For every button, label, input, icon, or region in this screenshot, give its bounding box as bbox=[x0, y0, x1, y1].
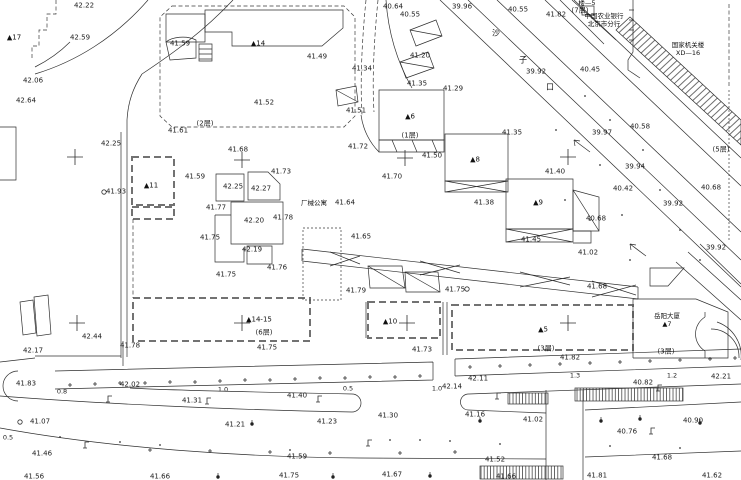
spot-elevation-label: 42.27 bbox=[251, 186, 271, 193]
spot-elevation-label: 42.44 bbox=[82, 334, 102, 341]
building-number-label: ▲14 bbox=[251, 41, 265, 48]
dimension-label: 1.3 bbox=[570, 373, 580, 380]
spot-elevation-label: 41.21 bbox=[225, 422, 245, 429]
spot-elevation-label: 41.83 bbox=[16, 381, 36, 388]
street-name-char: 沙 bbox=[492, 30, 500, 37]
spot-elevation-label: 40.55 bbox=[400, 12, 420, 19]
spot-elevation-label: 40.68 bbox=[701, 185, 721, 192]
spot-elevation-label: 41.66 bbox=[150, 474, 170, 480]
spot-elevation-label: 41.75 bbox=[200, 235, 220, 242]
spot-elevation-label: 42.06 bbox=[23, 78, 43, 85]
spot-elevation-label: 41.68 bbox=[587, 284, 607, 291]
annotation-apartment: 厂械公寓 bbox=[301, 200, 327, 208]
floor-count-label: (5层) bbox=[713, 147, 730, 154]
building-number-label: ▲9 bbox=[533, 200, 543, 207]
spot-elevation-label: 41.59 bbox=[287, 454, 307, 461]
spot-elevation-label: 41.35 bbox=[502, 130, 522, 137]
spot-elevation-label: 41.52 bbox=[485, 457, 505, 464]
spot-elevation-label: 41.29 bbox=[443, 86, 463, 93]
spot-elevation-label: 42.02 bbox=[120, 382, 140, 389]
spot-elevation-label: 41.02 bbox=[523, 417, 543, 424]
spot-elevation-label: 41.23 bbox=[317, 419, 337, 426]
spot-elevation-label: 41.67 bbox=[382, 472, 402, 479]
floor-count-label: (2层) bbox=[197, 121, 214, 128]
spot-elevation-label: 41.38 bbox=[474, 200, 494, 207]
floor-count-label: (3层) bbox=[538, 346, 555, 353]
spot-elevation-label: 42.14 bbox=[442, 384, 462, 391]
spot-elevation-label: 41.68 bbox=[652, 455, 672, 462]
spot-elevation-label: 41.46 bbox=[32, 451, 52, 458]
spot-elevation-label: 40.82 bbox=[633, 380, 653, 387]
spot-elevation-label: 41.78 bbox=[273, 215, 293, 222]
spot-elevation-label: 41.75 bbox=[445, 287, 465, 294]
spot-elevation-label: 41.75 bbox=[257, 345, 277, 352]
dimension-label: 0.8 bbox=[57, 389, 67, 396]
spot-elevation-label: 41.65 bbox=[351, 234, 371, 241]
spot-elevation-label: 41.70 bbox=[382, 174, 402, 181]
spot-elevation-label: 42.20 bbox=[244, 218, 264, 225]
spot-elevation-label: 40.90 bbox=[683, 418, 703, 425]
spot-elevation-label: 42.59 bbox=[70, 35, 90, 42]
spot-elevation-label: 41.82 bbox=[546, 12, 566, 19]
spot-elevation-label: 40.58 bbox=[630, 124, 650, 131]
building-number-label: ▲10 bbox=[383, 319, 397, 326]
spot-elevation-label: 41.68 bbox=[228, 147, 248, 154]
spot-elevation-label: 41.30 bbox=[378, 413, 398, 420]
spot-elevation-label: 42.21 bbox=[711, 374, 731, 381]
plus-tick-icons bbox=[68, 356, 737, 455]
spot-elevation-label: 41.93 bbox=[106, 189, 126, 196]
dimension-label: 1.0 bbox=[432, 386, 442, 393]
spot-elevation-label: 39.92 bbox=[663, 201, 683, 208]
spot-elevation-label: 40.64 bbox=[383, 4, 403, 11]
spot-elevation-label: 39.94 bbox=[625, 164, 645, 171]
spot-elevation-label: 41.02 bbox=[578, 250, 598, 257]
spot-elevation-label: 41.51 bbox=[346, 108, 366, 115]
spot-elevation-label: 40.76 bbox=[617, 429, 637, 436]
survey-grid-cross-icons bbox=[67, 149, 576, 331]
building-number-label: ▲6 bbox=[405, 114, 415, 121]
spot-elevation-label: 41.75 bbox=[216, 272, 236, 279]
spot-elevation-label: 40.68 bbox=[586, 216, 606, 223]
building-number-label: ▲14-15 bbox=[246, 317, 272, 324]
spot-elevation-label: 41.49 bbox=[307, 54, 327, 61]
spot-elevation-label: 41.59 bbox=[170, 41, 190, 48]
spot-elevation-label: 40.45 bbox=[580, 67, 600, 74]
annotation-line: 厂械公寓 bbox=[301, 200, 327, 208]
spot-elevation-label: 41.73 bbox=[271, 169, 291, 176]
crosswalk-bar bbox=[575, 388, 683, 401]
spot-elevation-label: 39.97 bbox=[592, 130, 612, 137]
spot-elevation-label: 41.66 bbox=[496, 474, 516, 480]
spot-elevation-label: 42.17 bbox=[23, 348, 43, 355]
annotation-annex5: 楼—5 bbox=[578, 0, 595, 8]
crosswalk-bar-small bbox=[508, 393, 548, 404]
spot-elevation-label: 41.64 bbox=[335, 200, 355, 207]
spot-elevation-label: 41.76 bbox=[267, 265, 287, 272]
spot-elevation-label: 42.64 bbox=[16, 98, 36, 105]
spot-elevation-label: 42.19 bbox=[242, 247, 262, 254]
spot-elevation-label: 41.77 bbox=[206, 205, 226, 212]
building-number-label: ▲17 bbox=[7, 35, 21, 42]
building-number-label: ▲8 bbox=[470, 157, 480, 164]
spot-elevation-label: 41.07 bbox=[30, 419, 50, 426]
street-name-char: 口 bbox=[546, 84, 554, 91]
building-number-label: ▲5 bbox=[538, 327, 548, 334]
spot-elevation-label: 41.45 bbox=[521, 237, 541, 244]
spot-elevation-label: 42.25 bbox=[101, 141, 121, 148]
annotation-bank: 中国农业银行北京市分行 bbox=[585, 13, 624, 28]
spot-elevation-label: 42.22 bbox=[74, 3, 94, 10]
floor-count-label: (3层) bbox=[658, 349, 675, 356]
spot-elevation-label: 41.52 bbox=[254, 100, 274, 107]
spot-elevation-label: 42.25 bbox=[223, 184, 243, 191]
spot-elevation-label: 41.61 bbox=[168, 128, 188, 135]
spot-elevation-label: 41.35 bbox=[407, 81, 427, 88]
spot-elevation-label: 41.81 bbox=[587, 473, 607, 480]
street-name-char: 子 bbox=[519, 57, 527, 64]
survey-point-icons bbox=[18, 190, 469, 424]
spot-elevation-label: 40.55 bbox=[508, 7, 528, 14]
annotation-line: 北京市分行 bbox=[585, 21, 624, 29]
floor-count-label: (6层) bbox=[256, 330, 273, 337]
annotation-gov: 国家机关楼XD—16 bbox=[672, 42, 705, 57]
spot-elevation-label: 41.40 bbox=[287, 393, 307, 400]
annotation-line: 楼—5 bbox=[578, 0, 595, 8]
spot-elevation-label: 41.20 bbox=[410, 53, 430, 60]
spot-elevation-label: 41.31 bbox=[182, 398, 202, 405]
spot-elevation-label: 41.75 bbox=[279, 473, 299, 480]
spot-elevation-label: 41.59 bbox=[185, 174, 205, 181]
spot-elevation-label: 39.92 bbox=[526, 69, 546, 76]
hatched-areas bbox=[480, 17, 741, 479]
annotation-line: XD—16 bbox=[672, 50, 705, 58]
spot-elevation-label: 41.62 bbox=[702, 473, 722, 480]
dimension-label: 1.0 bbox=[218, 387, 228, 394]
spot-elevation-label: 41.34 bbox=[352, 66, 372, 73]
dimension-label: 1.2 bbox=[667, 373, 677, 380]
annotation-line: ▲7 bbox=[654, 321, 680, 329]
hatched-band-bottom bbox=[480, 466, 563, 479]
spot-elevation-label: 41.72 bbox=[348, 144, 368, 151]
spot-elevation-label: 42.11 bbox=[468, 376, 488, 383]
spot-elevation-label: 41.78 bbox=[120, 343, 140, 350]
spot-elevation-label: 41.50 bbox=[422, 153, 442, 160]
annotation-tower: 岳阳大厦▲7 bbox=[654, 313, 680, 328]
spot-elevation-label: 41.82 bbox=[560, 355, 580, 362]
spot-elevation-label: 41.40 bbox=[545, 169, 565, 176]
spot-elevation-label: 41.73 bbox=[412, 347, 432, 354]
spot-elevation-label: 41.16 bbox=[465, 412, 485, 419]
tree-icons bbox=[216, 415, 701, 479]
spot-elevation-label: 41.56 bbox=[24, 474, 44, 480]
spot-elevation-label: 41.79 bbox=[346, 288, 366, 295]
dimension-label: 0.5 bbox=[3, 435, 13, 442]
spot-elevation-label: 39.92 bbox=[706, 245, 726, 252]
floor-count-label: (1层) bbox=[402, 133, 419, 140]
spot-elevation-label: 40.42 bbox=[613, 186, 633, 193]
survey-map-canvas: 42.2242.5942.0642.6442.2541.5941.6141.68… bbox=[0, 0, 741, 480]
building-number-label: ▲11 bbox=[144, 183, 158, 190]
spot-elevation-label: 39.96 bbox=[452, 4, 472, 11]
dimension-label: 0.5 bbox=[343, 386, 353, 393]
